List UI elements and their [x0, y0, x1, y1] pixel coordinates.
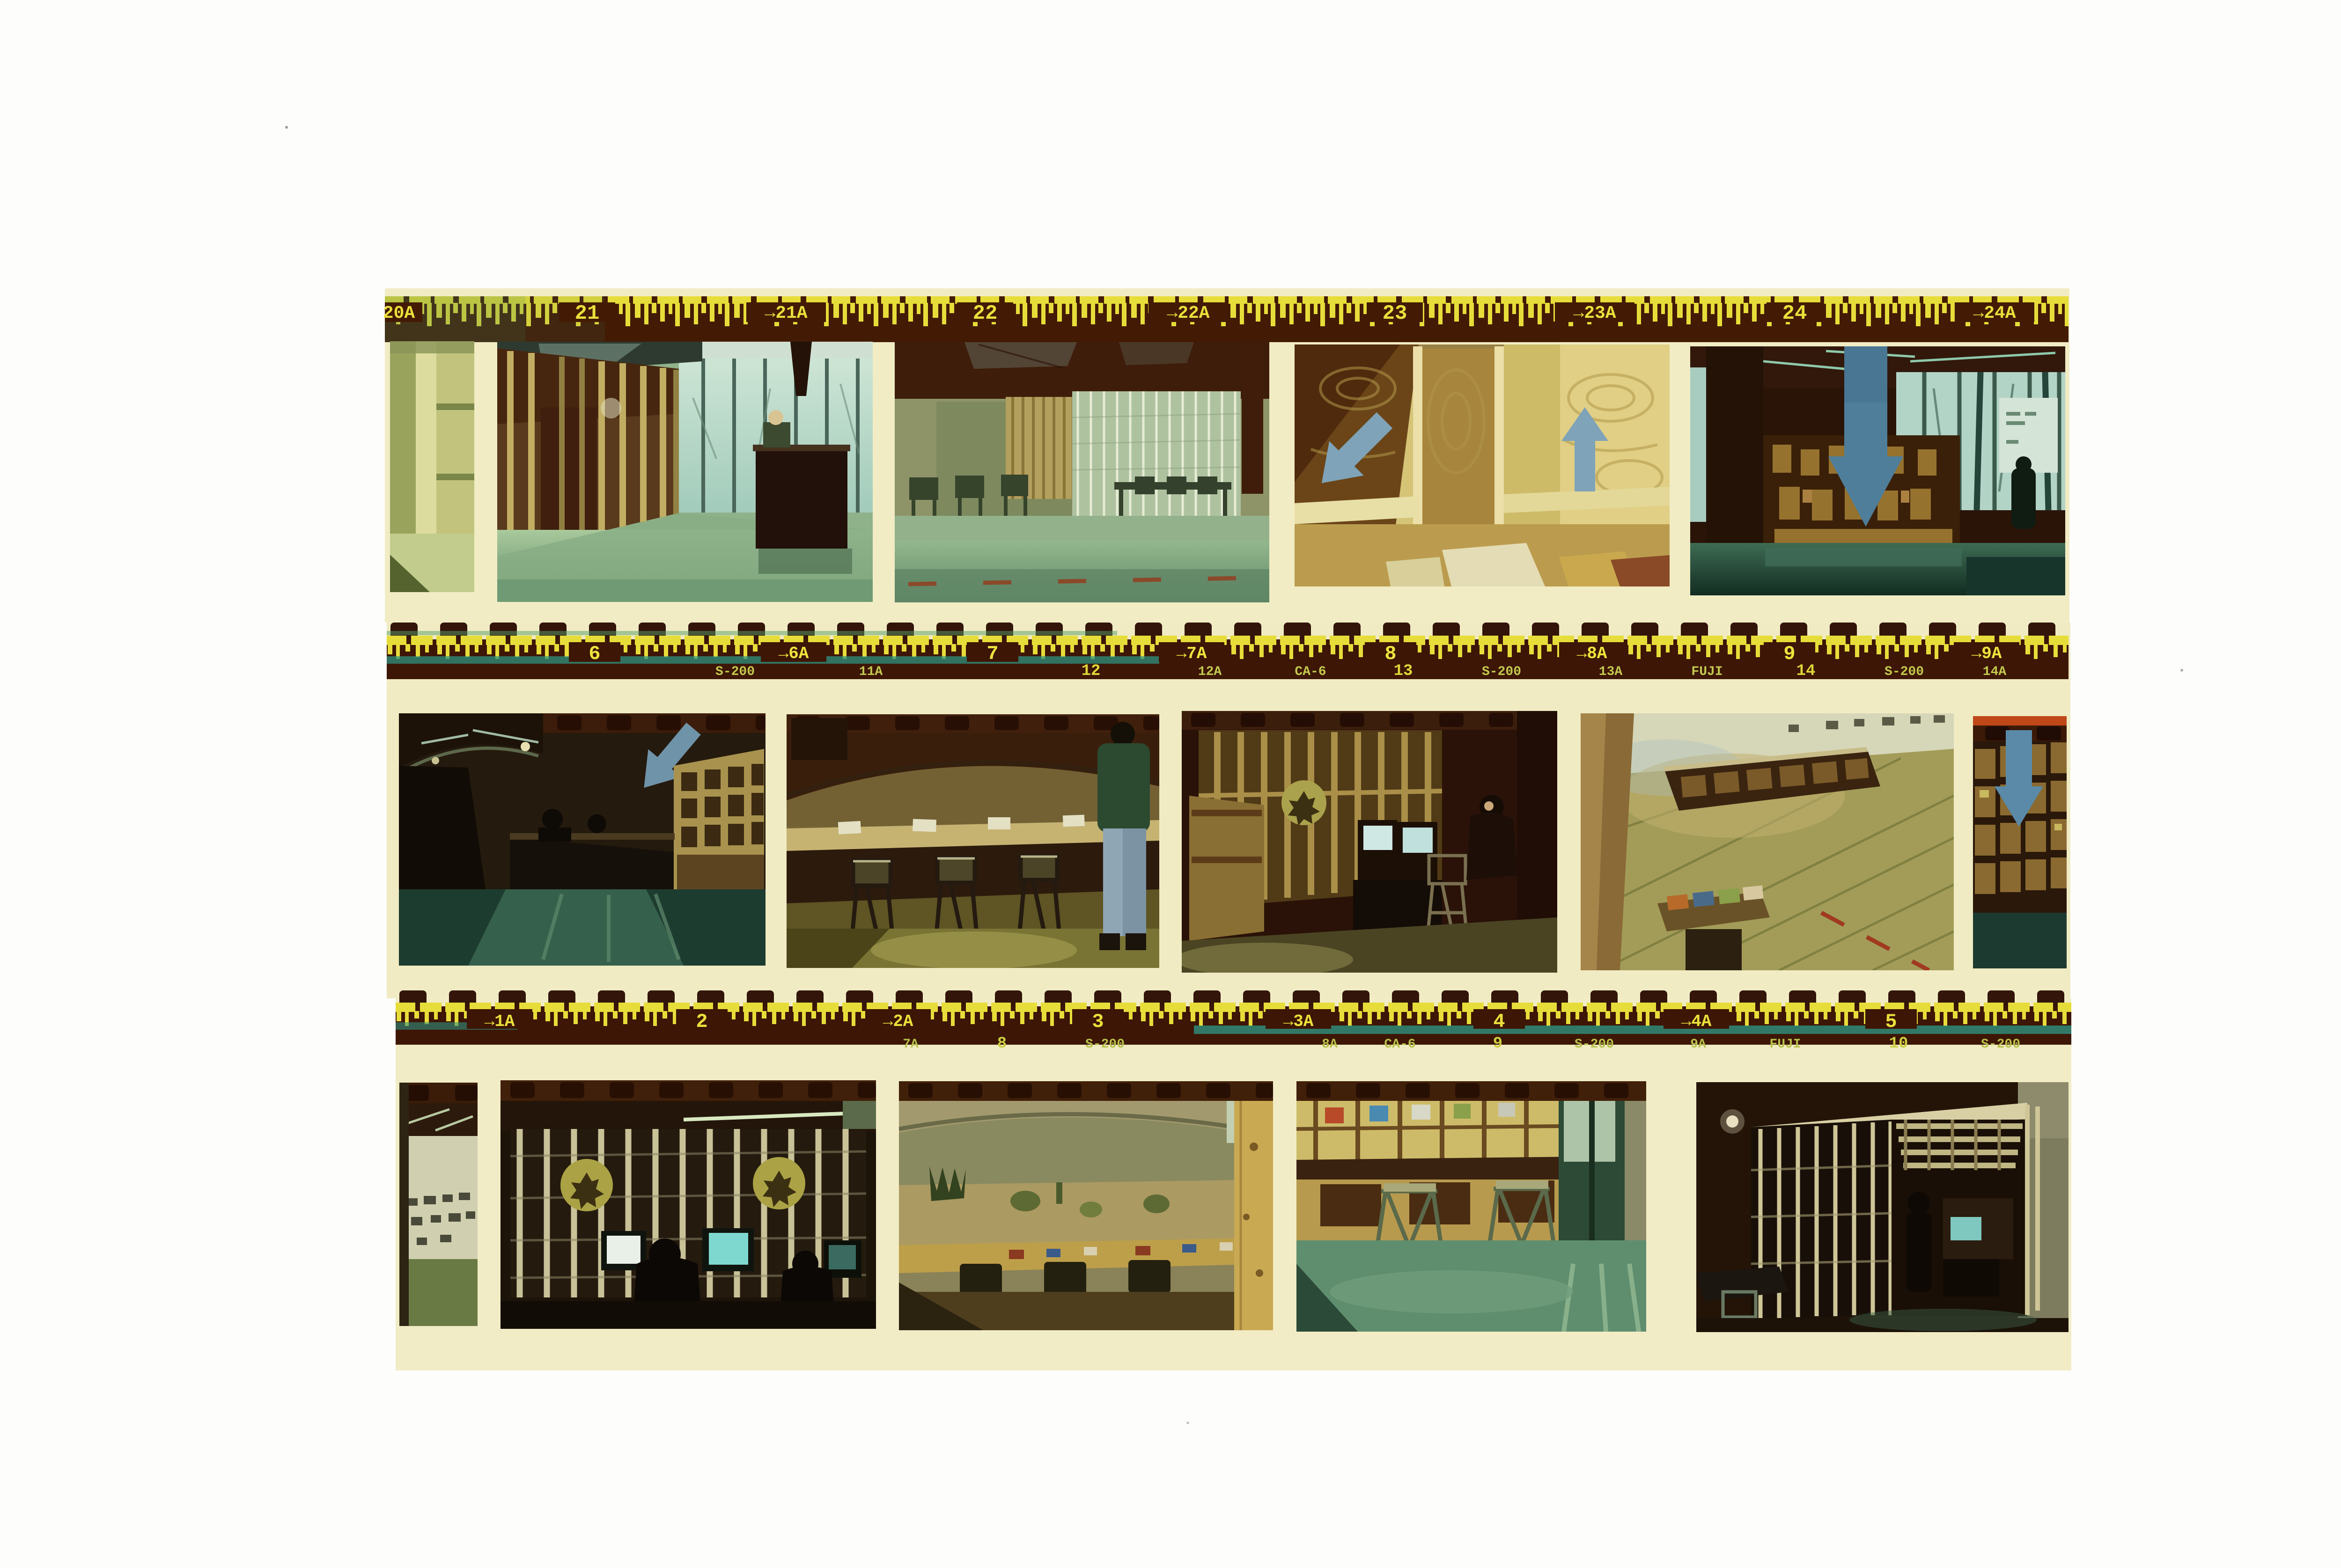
svg-text:FUJI: FUJI: [1769, 1037, 1801, 1052]
svg-text:9: 9: [1493, 1035, 1502, 1053]
svg-text:2: 2: [696, 1011, 707, 1033]
svg-text:12A: 12A: [1198, 665, 1222, 679]
svg-text:8: 8: [997, 1035, 1007, 1053]
svg-text:→7A: →7A: [1177, 644, 1207, 663]
svg-text:14: 14: [1796, 662, 1816, 680]
svg-text:S-200: S-200: [1981, 1037, 2020, 1052]
svg-text:→6A: →6A: [779, 644, 809, 663]
svg-text:S-200: S-200: [1885, 665, 1924, 679]
svg-text:→22A: →22A: [1167, 303, 1209, 323]
svg-text:7: 7: [986, 643, 998, 665]
svg-text:20A: 20A: [383, 303, 415, 323]
svg-text:→24A: →24A: [1973, 303, 2016, 323]
svg-text:→2A: →2A: [883, 1012, 913, 1031]
svg-text:13A: 13A: [1599, 665, 1623, 679]
svg-text:→8A: →8A: [1577, 644, 1607, 663]
svg-text:→4A: →4A: [1681, 1012, 1712, 1031]
svg-text:S-200: S-200: [1085, 1037, 1125, 1052]
svg-text:24: 24: [1782, 302, 1807, 325]
svg-text:→9A: →9A: [1972, 644, 2002, 663]
svg-text:21: 21: [575, 302, 600, 325]
svg-text:8: 8: [1384, 643, 1396, 665]
svg-text:→23A: →23A: [1573, 303, 1616, 323]
svg-text:→3A: →3A: [1283, 1012, 1314, 1031]
svg-text:3: 3: [1092, 1011, 1104, 1033]
svg-text:13: 13: [1394, 662, 1413, 680]
svg-text:S-200: S-200: [1482, 665, 1521, 679]
svg-text:14A: 14A: [1983, 665, 2007, 679]
svg-text:9A: 9A: [1690, 1037, 1706, 1052]
svg-text:12: 12: [1082, 662, 1101, 680]
svg-text:4: 4: [1493, 1011, 1505, 1033]
svg-text:S-200: S-200: [715, 665, 755, 679]
svg-text:→21A: →21A: [765, 303, 807, 323]
svg-text:7A: 7A: [903, 1037, 919, 1052]
svg-text:CA-6: CA-6: [1384, 1037, 1415, 1052]
svg-text:5: 5: [1885, 1011, 1897, 1033]
svg-text:CA-6: CA-6: [1295, 665, 1326, 679]
svg-text:FUJI: FUJI: [1691, 665, 1723, 679]
svg-text:23: 23: [1383, 302, 1407, 325]
svg-text:9: 9: [1783, 643, 1795, 665]
svg-text:10: 10: [1889, 1035, 1908, 1053]
svg-text:8A: 8A: [1322, 1037, 1338, 1052]
svg-text:6: 6: [589, 643, 600, 665]
svg-text:11A: 11A: [859, 665, 883, 679]
svg-text:22: 22: [973, 302, 998, 325]
svg-text:→1A: →1A: [485, 1012, 515, 1031]
svg-text:S-200: S-200: [1575, 1037, 1614, 1052]
